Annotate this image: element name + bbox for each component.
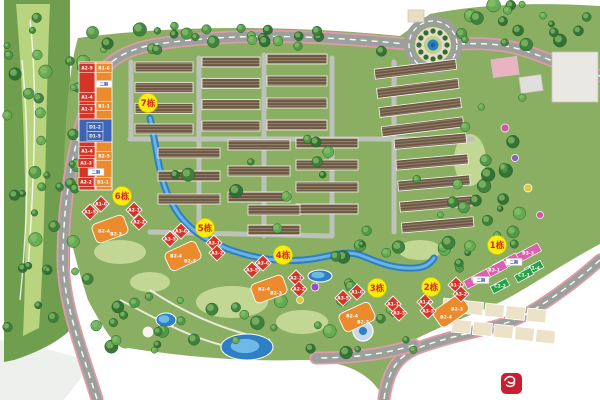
tree-highlight — [38, 184, 43, 189]
tree-highlight — [36, 109, 42, 115]
row-building — [267, 54, 327, 64]
tree-highlight — [10, 191, 16, 197]
tree-highlight — [252, 317, 260, 325]
tower-chip-label: A1-4 — [81, 95, 93, 101]
pond-highlight — [159, 315, 170, 323]
tree-highlight — [377, 47, 383, 53]
tree-highlight — [502, 39, 506, 43]
tree-highlight — [483, 216, 489, 222]
pond-highlight — [311, 272, 324, 279]
tree-highlight — [271, 325, 275, 329]
orange-unit-label: B2-4 — [346, 314, 358, 320]
tree-highlight — [508, 137, 515, 144]
tree-highlight — [71, 185, 76, 190]
pink-block-label: B3-3 — [522, 251, 534, 257]
orange-unit-label: B2-4 — [170, 254, 182, 260]
tree-highlight — [19, 264, 24, 269]
tree-highlight — [4, 112, 9, 117]
terrace-building — [493, 324, 513, 339]
amenity — [537, 212, 544, 219]
tree-highlight — [459, 203, 465, 209]
tree-highlight — [438, 212, 441, 215]
roundabout-bush — [418, 35, 423, 40]
tree-highlight — [471, 196, 477, 202]
tower-chip-label: A2-5 — [81, 66, 93, 72]
tree-highlight — [69, 130, 75, 136]
red-unit-label: A3-6 — [257, 261, 269, 267]
row-building — [296, 182, 358, 192]
tree-highlight — [454, 180, 460, 186]
fountain-pool — [359, 327, 367, 335]
tree-highlight — [68, 236, 75, 243]
tower-chip-label: A2-2 — [80, 180, 92, 186]
orange-unit-label: B2-3 — [270, 291, 282, 297]
tree-highlight — [312, 138, 318, 144]
red-unit-label: A1-6 — [95, 202, 107, 208]
tower-chip-label: A1-3 — [80, 161, 92, 167]
building-marker-label: 2栋 — [424, 282, 439, 293]
tree-highlight — [35, 302, 39, 306]
masterplan-page: B2-4B2-3B2-4B2-3B2-4B2-3B2-4B2-3B2-3B2-4… — [0, 0, 600, 400]
roundabout-pool-center — [431, 43, 436, 48]
red-unit-label: A2-2 — [133, 220, 145, 226]
orange-unit-label: B2-3 — [184, 259, 196, 265]
tree-highlight — [294, 43, 299, 48]
tree-highlight — [5, 52, 10, 57]
tree-highlight — [540, 13, 544, 17]
masterplan-map: B2-4B2-3B2-4B2-3B2-4B2-3B2-4B2-3B2-3B2-4… — [0, 0, 600, 400]
orange-unit-label: B2-3 — [110, 232, 122, 238]
roundabout-bush — [430, 28, 435, 33]
tree-highlight — [232, 304, 237, 309]
tree-highlight — [448, 198, 454, 204]
tower-chip-label: A1-3 — [81, 107, 93, 113]
tree-highlight — [155, 28, 159, 32]
row-building — [135, 83, 193, 93]
tree-highlight — [483, 169, 491, 177]
row-building — [228, 140, 290, 150]
tree-highlight — [549, 21, 552, 24]
tree-highlight — [295, 32, 300, 37]
tree-highlight — [120, 312, 125, 317]
tree-highlight — [171, 31, 175, 35]
red-unit-label: A3-2 — [455, 292, 467, 298]
tree-highlight — [153, 46, 158, 51]
tree-highlight — [72, 269, 76, 273]
roundabout-bush — [430, 56, 435, 61]
developer-logo-glyph — [501, 373, 518, 390]
tree-highlight — [519, 2, 523, 6]
tree-highlight — [155, 342, 159, 346]
lawn — [130, 272, 170, 292]
tree-highlight — [238, 25, 243, 30]
row-building — [202, 100, 260, 110]
tree-highlight — [110, 319, 115, 324]
tree-highlight — [499, 17, 504, 22]
terrace-building — [484, 303, 504, 318]
tree-highlight — [112, 336, 118, 342]
tree-highlight — [273, 225, 278, 230]
amenity — [524, 184, 532, 192]
tree-highlight — [24, 89, 30, 95]
tree-highlight — [66, 179, 72, 185]
tower-chip-label: A1-4 — [81, 149, 93, 155]
tree-highlight — [172, 171, 177, 176]
tree-highlight — [83, 275, 89, 281]
tree-highlight — [25, 263, 29, 267]
tree-highlight — [313, 158, 319, 164]
tree-highlight — [574, 27, 580, 33]
tree-highlight — [241, 311, 246, 316]
tree-highlight — [66, 57, 71, 62]
structure — [491, 56, 519, 77]
phase-tag-label: 二期 — [510, 259, 518, 266]
tree-highlight — [70, 162, 74, 166]
tree-highlight — [155, 328, 160, 333]
tree-highlight — [514, 208, 521, 215]
tree-highlight — [341, 347, 348, 354]
roundabout-bush — [444, 42, 449, 47]
row-building — [135, 62, 193, 72]
tree-highlight — [461, 123, 466, 128]
tree-highlight — [20, 191, 24, 195]
amenity — [501, 124, 509, 132]
red-unit-label: A2-1 — [128, 208, 140, 214]
orange-unit-label: B2-4 — [98, 229, 110, 235]
tree-highlight — [5, 43, 8, 46]
amenity — [297, 297, 304, 304]
red-unit-label: A3-5 — [422, 309, 434, 315]
tree-highlight — [313, 27, 318, 32]
tree-highlight — [521, 39, 528, 46]
tree-highlight — [182, 29, 188, 35]
tree-highlight — [274, 37, 279, 42]
tree-highlight — [583, 13, 588, 18]
tower-chip-label: B1-1 — [98, 104, 110, 110]
tower-chip-label: D1-5 — [89, 134, 101, 140]
tree-highlight — [103, 39, 109, 45]
roundabout-bush — [437, 30, 442, 35]
tree-highlight — [315, 322, 319, 326]
tree-highlight — [519, 95, 523, 99]
tree-highlight — [40, 66, 47, 73]
red-unit-label: A3-2 — [211, 251, 223, 257]
green-block-label: C1-2 — [494, 284, 506, 290]
building-marker-label: 4栋 — [276, 250, 291, 261]
lawn — [94, 240, 146, 264]
tree-highlight — [304, 136, 309, 141]
tree-highlight — [282, 192, 288, 198]
tree-highlight — [30, 234, 38, 242]
red-unit-label: A2-1 — [290, 276, 302, 282]
red-unit-label: A3-5 — [164, 237, 176, 243]
roundabout-bush — [416, 42, 421, 47]
tree-highlight — [33, 14, 38, 19]
row-building — [202, 78, 260, 88]
tree-highlight — [403, 337, 407, 341]
tree-highlight — [46, 267, 50, 271]
tree-highlight — [410, 347, 414, 351]
tree-highlight — [462, 37, 466, 41]
tree-highlight — [35, 94, 40, 99]
orange-unit-label: B2-3 — [357, 320, 369, 326]
tree-highlight — [514, 26, 520, 32]
row-building — [267, 98, 327, 108]
tree-highlight — [383, 249, 388, 254]
row-building — [248, 205, 300, 215]
phase-tag-label: 二期 — [92, 169, 100, 176]
red-unit-label: A1-6 — [351, 290, 363, 296]
red-unit-label: A3-3 — [393, 311, 405, 317]
building-marker-label: 5栋 — [198, 223, 213, 234]
tree-highlight — [456, 260, 460, 264]
tree-highlight — [113, 302, 120, 309]
tree-highlight — [393, 242, 400, 249]
roundabout-bush — [443, 49, 448, 54]
tower-chip-label: B1-6 — [98, 66, 110, 72]
tree-highlight — [10, 69, 17, 76]
tree-highlight — [550, 29, 555, 34]
phase-tag-label: 二期 — [100, 81, 108, 88]
row-building — [228, 166, 290, 176]
red-unit-label: A2-2 — [293, 287, 305, 293]
tree-highlight — [171, 23, 175, 27]
tower-chip-label: B1-1 — [97, 180, 109, 186]
tree-highlight — [511, 241, 516, 246]
tree-highlight — [189, 335, 195, 341]
pink-block-label: B3-1 — [488, 268, 500, 274]
green-block-label: C1-1 — [518, 273, 530, 279]
tree-highlight — [178, 298, 182, 302]
tree-highlight — [231, 186, 239, 194]
tree-highlight — [498, 206, 501, 209]
roundabout-bush — [423, 55, 428, 60]
row-building — [296, 160, 358, 170]
tree-highlight — [146, 294, 150, 298]
tree-highlight — [71, 85, 74, 88]
tree-highlight — [324, 326, 331, 333]
roundabout-bush — [443, 35, 448, 40]
tree-highlight — [443, 237, 450, 244]
roundabout-bush — [418, 49, 423, 54]
amenity — [512, 155, 519, 162]
tree-highlight — [4, 323, 9, 328]
tree-highlight — [38, 137, 43, 142]
building-marker-label: 7栋 — [141, 98, 156, 109]
tree-highlight — [233, 337, 237, 341]
row-building — [158, 194, 220, 204]
red-unit-label: A3-5 — [246, 268, 258, 274]
tree-highlight — [332, 252, 338, 258]
tree-highlight — [307, 345, 312, 350]
tree-highlight — [248, 36, 253, 41]
row-building — [267, 120, 327, 130]
tree-highlight — [49, 313, 55, 319]
tree-highlight — [152, 348, 155, 351]
row-building — [158, 148, 220, 158]
tree-highlight — [44, 172, 48, 176]
tower-chip-label: B2-5 — [98, 154, 110, 160]
tree-highlight — [33, 51, 38, 56]
tree-highlight — [347, 282, 353, 288]
tree-highlight — [203, 26, 208, 31]
tree-highlight — [508, 227, 515, 234]
red-unit-label: A1-5 — [84, 210, 96, 216]
tree-highlight — [134, 24, 141, 31]
structure — [552, 52, 598, 102]
tree-highlight — [260, 37, 266, 43]
tree-highlight — [92, 321, 98, 327]
tree-highlight — [500, 164, 505, 169]
terrace-building — [472, 322, 492, 337]
terrace-building — [526, 308, 546, 323]
tree-highlight — [472, 13, 479, 20]
tree-highlight — [130, 299, 135, 304]
tree-highlight — [457, 29, 463, 35]
tree-highlight — [207, 304, 214, 311]
tree-highlight — [504, 7, 509, 12]
phase-tag-label: 二期 — [477, 277, 485, 284]
tree-highlight — [479, 104, 483, 108]
tree-highlight — [377, 315, 382, 320]
tree-highlight — [363, 227, 368, 232]
tree-highlight — [355, 347, 358, 350]
tree-highlight — [192, 34, 196, 38]
amenity — [311, 283, 319, 291]
tree-highlight — [465, 242, 471, 248]
tree-highlight — [359, 242, 362, 245]
tower-chip-label: D1-2 — [89, 125, 101, 131]
orange-unit-label: B2-4 — [258, 287, 270, 293]
roundabout-bush — [437, 55, 442, 60]
lawn — [276, 310, 328, 334]
row-building — [135, 124, 193, 134]
terrace-building — [535, 329, 555, 344]
orange-unit-label: B2-4 — [440, 315, 452, 321]
tree-highlight — [264, 26, 269, 31]
tree-highlight — [30, 167, 37, 174]
tree-highlight — [320, 172, 324, 176]
row-building — [202, 121, 260, 131]
building-marker-label: 6栋 — [115, 191, 130, 202]
developer-logo — [501, 373, 522, 394]
structure — [408, 10, 424, 22]
structure — [519, 75, 543, 94]
tree-highlight — [56, 184, 60, 188]
red-unit-label: A3-5 — [337, 296, 349, 302]
tree-highlight — [208, 37, 215, 44]
terrace-building — [505, 306, 525, 321]
row-building — [296, 204, 358, 214]
roundabout-bush — [423, 30, 428, 35]
tree-highlight — [183, 169, 190, 176]
tree-highlight — [499, 195, 505, 201]
tree-highlight — [248, 159, 252, 163]
tree-highlight — [178, 317, 183, 322]
tree-highlight — [50, 222, 56, 228]
tree-highlight — [30, 28, 34, 32]
tree-highlight — [88, 28, 95, 35]
row-building — [267, 76, 327, 86]
building-marker-label: 1栋 — [490, 240, 505, 251]
terrace-building — [514, 327, 534, 342]
amenity — [143, 327, 153, 337]
tree-highlight — [32, 210, 36, 214]
building-marker-label: 3栋 — [370, 283, 385, 294]
red-unit-label: A3-6 — [175, 229, 187, 235]
orange-unit-label: B2-3 — [451, 307, 463, 313]
tree-highlight — [479, 180, 487, 188]
tree-highlight — [481, 156, 487, 162]
row-building — [202, 57, 260, 67]
tree-highlight — [414, 176, 418, 180]
tree-highlight — [324, 147, 330, 153]
